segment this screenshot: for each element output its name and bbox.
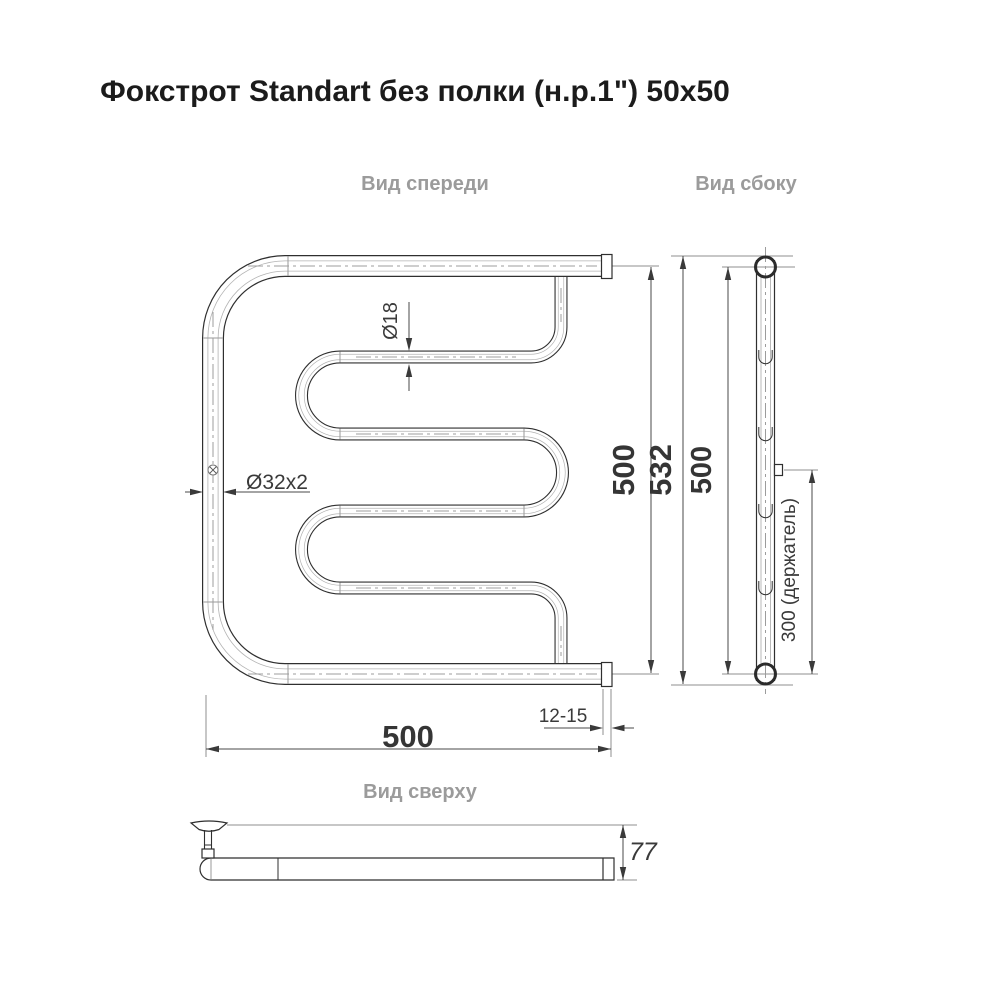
side-holder-stub	[775, 465, 783, 476]
front-centerlines	[213, 266, 597, 674]
dim-front-center-height: 500	[606, 444, 641, 496]
dim-main-pipe-diameter: Ø32x2	[246, 471, 308, 494]
top-dimension-lines	[620, 825, 626, 880]
technical-drawing-canvas: Фокстрот Standart без полки (н.р.1") 50x…	[0, 0, 1000, 1000]
dim-front-width: 500	[382, 719, 434, 754]
dim-front-overall-height: 532	[643, 444, 678, 496]
front-view-label: Вид спереди	[361, 173, 489, 195]
dim-top-depth: 77	[629, 838, 658, 866]
top-pipe-body	[200, 858, 614, 880]
dim-small-pipe-diameter: Ø18	[380, 302, 402, 340]
side-view: 500 300 (держатель)	[686, 247, 818, 694]
top-pipe-end-cap	[602, 255, 613, 279]
tangent-ticks	[204, 257, 525, 684]
top-view: 77	[191, 821, 658, 880]
drawing-page: Фокстрот Standart без полки (н.р.1") 50x…	[0, 0, 1000, 1000]
dim-end-cap-offset: 12-15	[539, 706, 588, 727]
dim-side-center-height: 500	[686, 446, 718, 494]
wall-bracket-symbol	[208, 465, 218, 475]
side-extension-lines	[722, 267, 818, 674]
page-title: Фокстрот Standart без полки (н.р.1") 50x…	[100, 75, 730, 108]
front-view: Ø18 Ø32x2 500 532 500 12-15	[185, 255, 793, 758]
side-tube	[757, 247, 775, 694]
bottom-pipe-end-cap	[602, 663, 613, 687]
top-holder	[191, 821, 227, 858]
dim-holder-spacing: 300 (держатель)	[779, 498, 800, 642]
side-view-label: Вид сбоку	[695, 173, 797, 195]
top-view-label: Вид сверху	[363, 781, 478, 803]
serpentine-pipe	[302, 277, 563, 663]
